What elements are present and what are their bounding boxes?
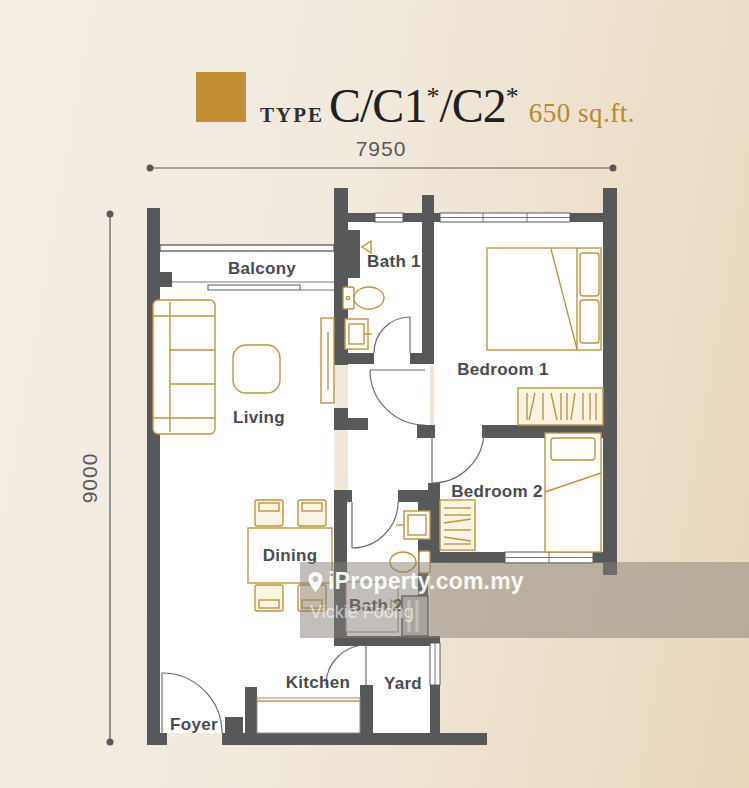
wardrobe <box>518 388 603 425</box>
dining-chair <box>298 500 326 526</box>
wardrobe <box>440 500 475 550</box>
dining-chair <box>255 500 283 526</box>
room-label-kitchen: Kitchen <box>286 673 350 692</box>
tv-console <box>321 318 334 403</box>
watermark-brand: iProperty.com.my <box>308 568 524 595</box>
single-bed <box>545 433 601 552</box>
sofa <box>153 300 215 434</box>
watermark-brand-text: iProperty.com.my <box>328 568 524 595</box>
dimension-left: 9000 <box>78 211 114 746</box>
watermark-agent: Vickie Foong <box>310 602 414 623</box>
window-yard <box>430 643 440 685</box>
dimension-height-label: 9000 <box>78 453 101 504</box>
dimension-top: 7950 <box>147 137 617 172</box>
room-label-bedroom1: Bedroom 1 <box>457 360 549 379</box>
room-label-balcony: Balcony <box>228 259 296 278</box>
dining-chair <box>255 585 283 611</box>
location-pin-icon <box>308 572 323 592</box>
floorplan-page: { "title": { "prefix": "TYPE", "main_par… <box>0 0 749 788</box>
window-bedroom1 <box>440 213 570 222</box>
double-bed <box>487 248 601 350</box>
sink <box>345 319 372 349</box>
window-bath1 <box>375 213 403 222</box>
room-label-living: Living <box>233 408 285 427</box>
watermark-overlay: iProperty.com.my Vickie Foong <box>300 562 749 638</box>
room-label-yard: Yard <box>384 674 422 693</box>
toilet <box>343 287 384 309</box>
room-label-foyer: Foyer <box>170 715 218 734</box>
coffee-table <box>233 345 280 393</box>
kitchen-counter <box>257 698 360 733</box>
room-label-bath1: Bath 1 <box>367 252 421 271</box>
room-label-bedroom2: Bedroom 2 <box>451 482 543 501</box>
floorplan-drawing: 7950 9000 <box>0 0 749 788</box>
dimension-width-label: 7950 <box>356 137 407 160</box>
